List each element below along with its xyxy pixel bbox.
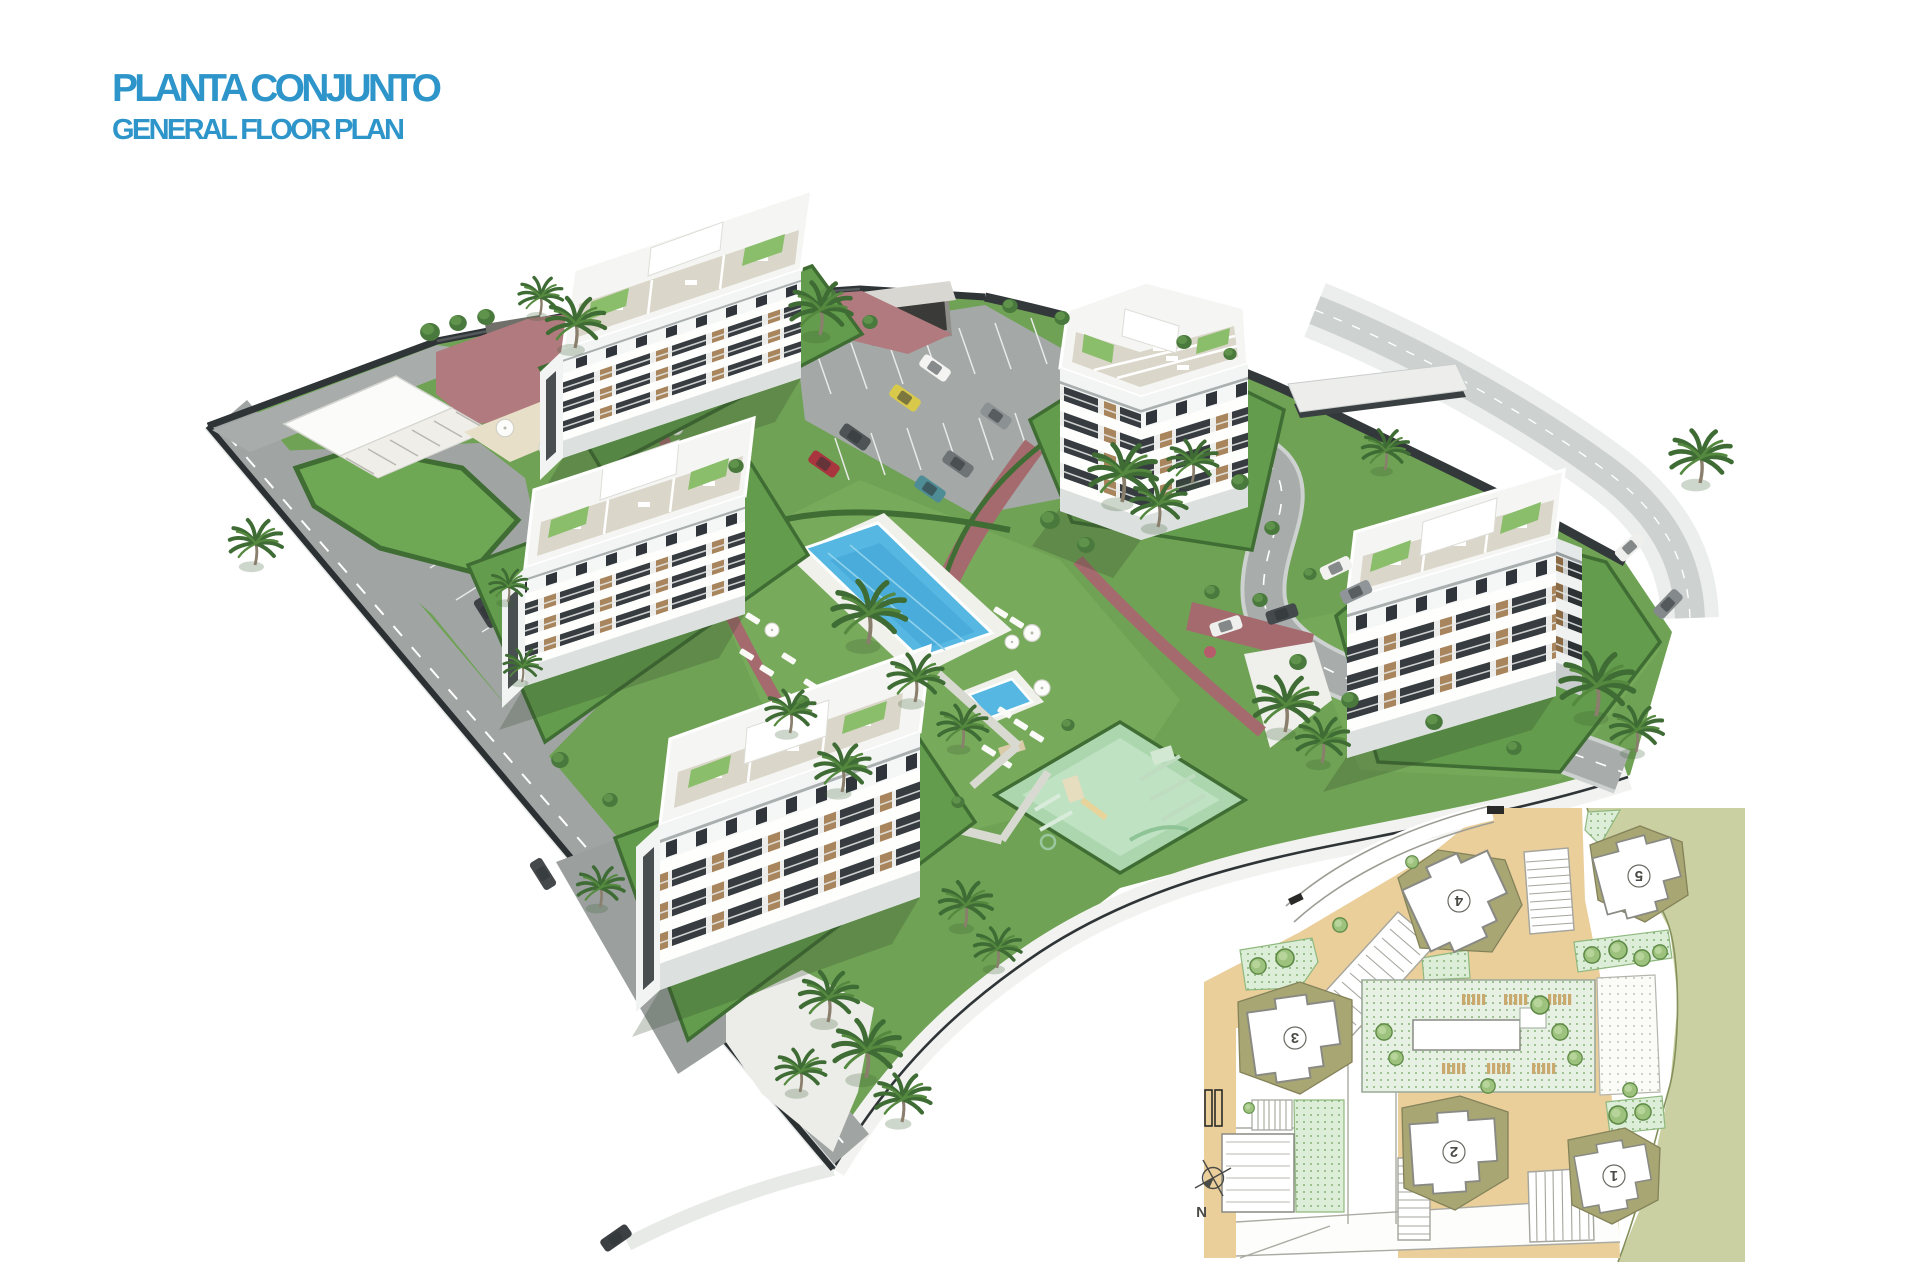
svg-text:4: 4 (1454, 892, 1463, 909)
svg-text:PLANTA CONJUNTO: PLANTA CONJUNTO (112, 67, 442, 110)
svg-text:1: 1 (1610, 1167, 1618, 1184)
svg-text:N: N (1196, 1203, 1207, 1220)
svg-text:2: 2 (1450, 1143, 1458, 1160)
svg-text:3: 3 (1291, 1029, 1299, 1046)
svg-text:GENERAL FLOOR PLAN: GENERAL FLOOR PLAN (112, 114, 405, 146)
svg-text:5: 5 (1635, 867, 1643, 884)
